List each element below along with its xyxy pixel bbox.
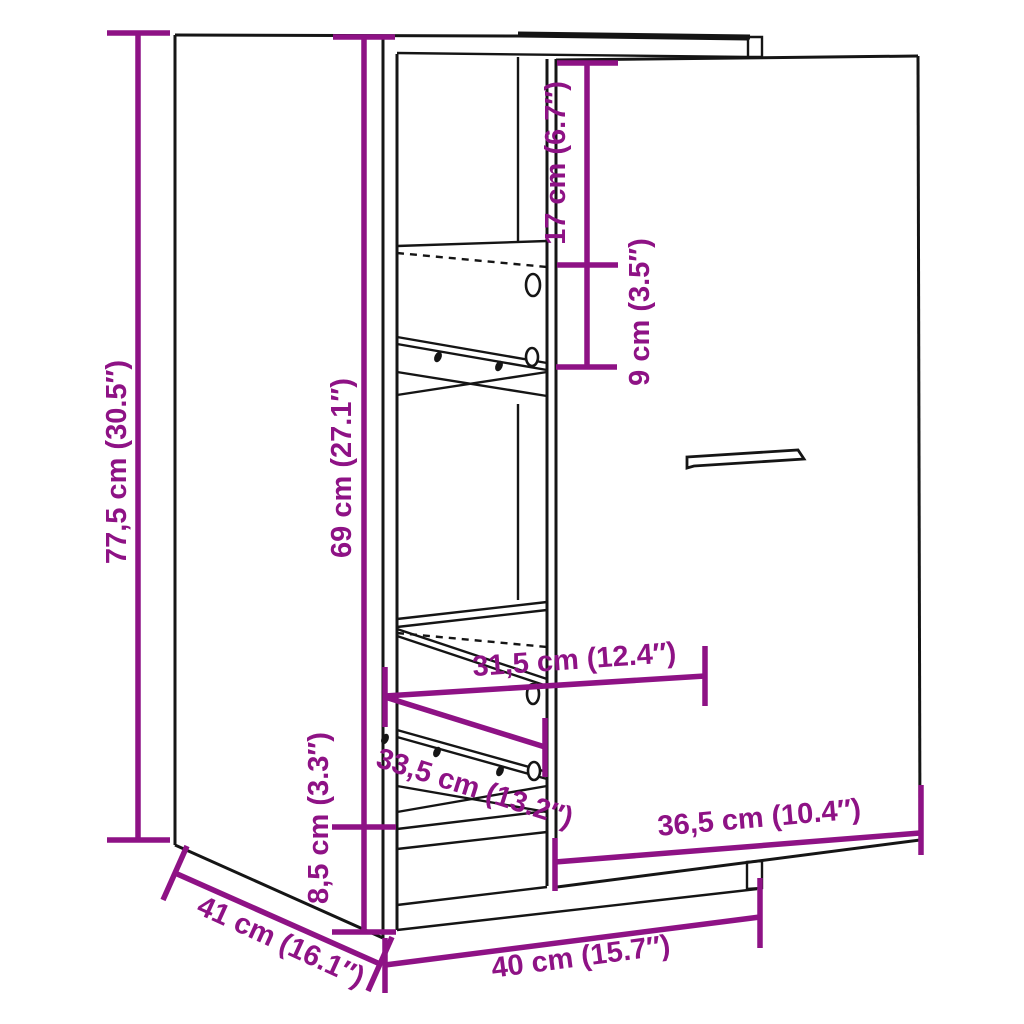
door-handle: [687, 450, 804, 468]
dim-label-total-height: 77,5 cm (30.5″): [101, 360, 133, 564]
dim-label-top-inner-height: 17 cm (6.7″): [540, 81, 572, 245]
dimension-door-width: 36,5 cm (10.4″): [555, 785, 921, 891]
dim-label-plinth-height: 8,5 cm (3.3″): [303, 732, 335, 904]
dim-label-depth: 41 cm (16.1″): [192, 890, 369, 994]
shelf-pin-hole: [528, 762, 540, 780]
dim-label-door-width: 36,5 cm (10.4″): [656, 793, 862, 843]
cabinet-dimension-diagram: 77,5 cm (30.5″) 69 cm (27.1″) 17 cm (6.7…: [0, 0, 1024, 1024]
dimension-annotations: 77,5 cm (30.5″) 69 cm (27.1″) 17 cm (6.7…: [101, 33, 921, 994]
upper-drawer-slats: [397, 337, 547, 396]
diagram-canvas: 77,5 cm (30.5″) 69 cm (27.1″) 17 cm (6.7…: [0, 0, 1024, 1024]
dim-label-shelf-spacing: 9 cm (3.5″): [624, 238, 656, 386]
dimension-depth: 41 cm (16.1″): [163, 846, 392, 994]
shelf-pin-hole: [526, 274, 540, 296]
side-panel: [175, 34, 750, 938]
dim-label-carcass-height: 69 cm (27.1″): [326, 378, 358, 558]
door-panel: [556, 56, 920, 887]
shelf-pin-hole: [526, 348, 538, 366]
upper-shelf: [397, 241, 547, 296]
dimension-shelf-spacing: 9 cm (3.5″): [556, 238, 656, 386]
dimension-total-height: 77,5 cm (30.5″): [101, 33, 170, 840]
top-panel: [397, 37, 762, 57]
dimension-top-inner-height: 17 cm (6.7″): [540, 63, 618, 265]
